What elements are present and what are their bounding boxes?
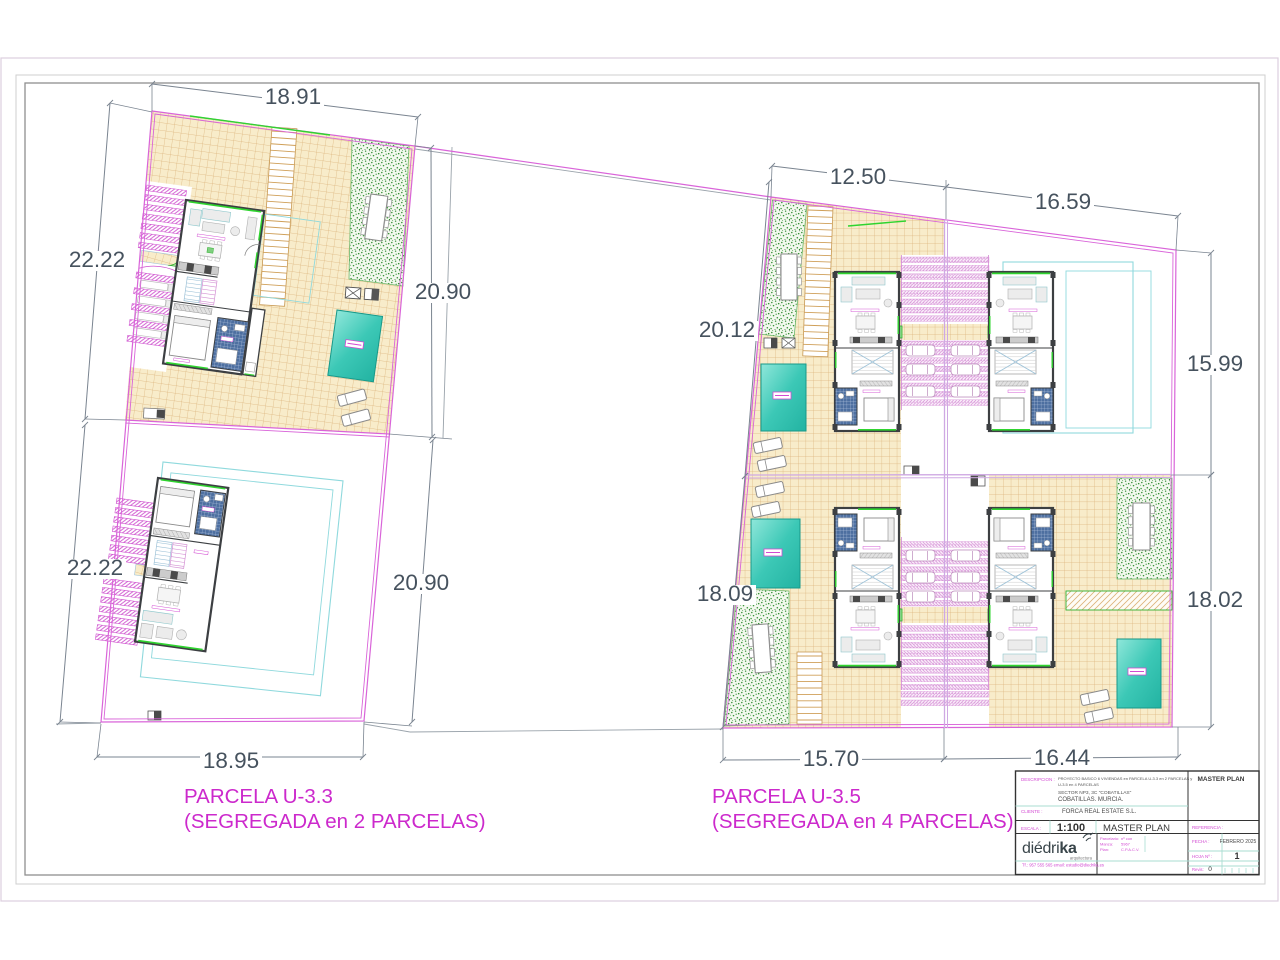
svg-text:C.P.A.C.V.: C.P.A.C.V. bbox=[1121, 847, 1139, 852]
svg-text:COBATILLAS. MURCIA.: COBATILLAS. MURCIA. bbox=[1058, 797, 1124, 803]
svg-text:15.99: 15.99 bbox=[1187, 351, 1243, 376]
svg-text:Plan:: Plan: bbox=[1100, 847, 1109, 852]
svg-text:22.22: 22.22 bbox=[69, 247, 125, 272]
svg-text:MASTER PLAN: MASTER PLAN bbox=[1103, 823, 1170, 834]
svg-text:Revis:: Revis: bbox=[1192, 867, 1204, 872]
svg-text:(SEGREGADA en 2 PARCELAS): (SEGREGADA en 2 PARCELAS) bbox=[184, 810, 486, 833]
svg-text:Parcelario:: Parcelario: bbox=[1100, 836, 1119, 841]
svg-text:diédrika: diédrika bbox=[1022, 840, 1077, 857]
svg-text:16.59: 16.59 bbox=[1035, 189, 1091, 214]
svg-text:16.44: 16.44 bbox=[1034, 745, 1090, 770]
svg-text:18.95: 18.95 bbox=[203, 748, 259, 773]
svg-text:ESCALA :: ESCALA : bbox=[1021, 826, 1041, 831]
svg-text:(SEGREGADA en 4 PARCELAS): (SEGREGADA en 4 PARCELAS) bbox=[712, 810, 1014, 833]
svg-text:20.12: 20.12 bbox=[699, 317, 755, 342]
svg-text:PROYECTO BASICO 6 VIVIENDAS en: PROYECTO BASICO 6 VIVIENDAS en PARCELA U… bbox=[1058, 776, 1192, 781]
svg-text:FORCA REAL ESTATE S.L.: FORCA REAL ESTATE S.L. bbox=[1062, 809, 1137, 815]
svg-text:FECHA :: FECHA : bbox=[1192, 839, 1210, 844]
svg-text:1:100: 1:100 bbox=[1057, 822, 1085, 834]
svg-text:MASTER PLAN: MASTER PLAN bbox=[1198, 776, 1245, 783]
svg-text:arquitectura: arquitectura bbox=[1070, 856, 1093, 861]
svg-text:22.22: 22.22 bbox=[67, 555, 123, 580]
svg-text:CLIENTE :: CLIENTE : bbox=[1021, 809, 1043, 814]
svg-text:PARCELA U-3.3: PARCELA U-3.3 bbox=[184, 785, 333, 808]
svg-text:0: 0 bbox=[1208, 866, 1212, 873]
svg-text:U-3.5 en 4 PARCELAS: U-3.5 en 4 PARCELAS bbox=[1058, 782, 1099, 787]
svg-text:18.09: 18.09 bbox=[697, 581, 753, 606]
svg-text:HOJA Nº :: HOJA Nº : bbox=[1192, 854, 1212, 859]
svg-text:5967: 5967 bbox=[1121, 842, 1131, 847]
svg-text:12.50: 12.50 bbox=[830, 164, 886, 189]
svg-text:nº con: nº con bbox=[1121, 836, 1132, 841]
svg-text:15.70: 15.70 bbox=[803, 746, 859, 771]
svg-text:Tf.: 957 555 565 email: estu: Tf.: 957 555 565 email: estudio@diedrika… bbox=[1022, 863, 1104, 868]
svg-text:18.02: 18.02 bbox=[1187, 587, 1243, 612]
svg-text:PARCELA U-3.5: PARCELA U-3.5 bbox=[712, 785, 861, 808]
svg-text:DESCRIPCION :: DESCRIPCION : bbox=[1021, 777, 1055, 782]
svg-text:1: 1 bbox=[1234, 851, 1239, 861]
svg-text:20.90: 20.90 bbox=[393, 570, 449, 595]
svg-text:18.91: 18.91 bbox=[265, 84, 321, 109]
svg-text:FEBRERO 2025: FEBRERO 2025 bbox=[1220, 839, 1257, 845]
svg-text:20.90: 20.90 bbox=[415, 279, 471, 304]
svg-text:Manza:: Manza: bbox=[1100, 842, 1113, 847]
svg-text:SECTOR NP3, 3C "COBATILLAS": SECTOR NP3, 3C "COBATILLAS" bbox=[1058, 790, 1132, 796]
svg-text:REFERENCIA :: REFERENCIA : bbox=[1192, 825, 1223, 830]
